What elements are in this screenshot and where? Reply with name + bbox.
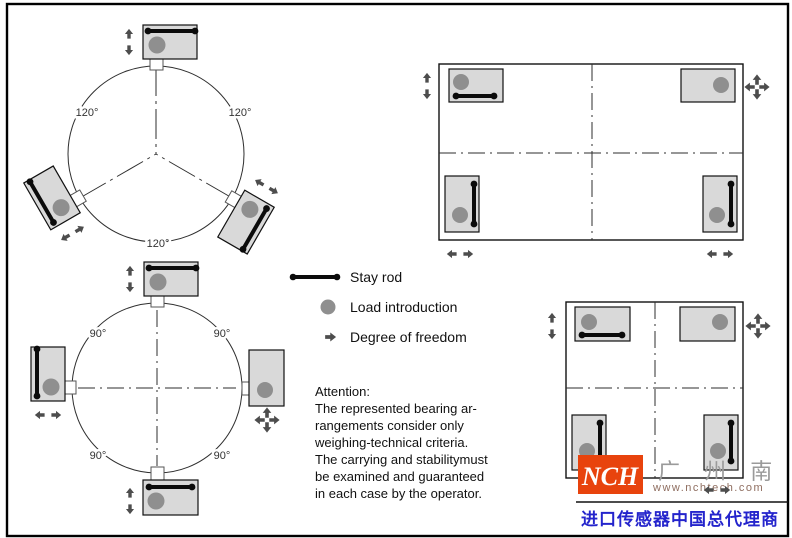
attention-line: be examined and guaranteed (315, 469, 484, 484)
attention-line: The represented bearing ar- (315, 401, 477, 416)
company-name: 广 州 南 创 (658, 459, 792, 484)
angle-label-90-tr: 90° (214, 328, 231, 340)
legend-stay-rod-label: Stay rod (350, 269, 402, 285)
attention-line: weighing-technical criteria. (314, 435, 468, 450)
load-cell-pad-br (703, 176, 737, 232)
load-introduction-icon (257, 382, 273, 398)
load-cell-pad-tl (449, 69, 503, 102)
angle-label-90-bl: 90° (90, 450, 107, 462)
load-cell-pad-tl (575, 307, 630, 341)
legend-load-introduction-label: Load introduction (350, 299, 457, 315)
angle-label-90-tl: 90° (90, 328, 107, 340)
load-cell-pad-tr (680, 307, 735, 341)
nch-logo: NCH 广 州 南 创 www.nchtech.com 进口传感器中国总代理商 (576, 455, 792, 529)
attention-line: rangements consider only (315, 418, 464, 433)
attention-line: The carrying and stabilitymust (315, 452, 488, 467)
attention-note: Attention: The represented bearing ar- r… (314, 384, 488, 501)
distributor-tagline: 进口传感器中国总代理商 (581, 509, 779, 529)
nch-logo-abbr: NCH (581, 462, 639, 491)
angle-label-120-right: 120° (229, 107, 252, 119)
load-introduction-icon (321, 300, 336, 315)
angle-label-120-bottom: 120° (147, 238, 170, 250)
legend-degree-of-freedom-label: Degree of freedom (350, 329, 467, 345)
diagram-canvas: 120° 120° 120° 90° 90° 90° 90° (0, 0, 792, 538)
attention-title: Attention: (315, 384, 370, 399)
load-cell-pad-bl (445, 176, 479, 232)
angle-label-120-left: 120° (76, 107, 99, 119)
load-cell-pad-tr (681, 69, 735, 102)
attention-line: in each case by the operator. (315, 486, 482, 501)
angle-label-90-br: 90° (214, 450, 231, 462)
bearing-arrangement-figure: 120° 120° 120° 90° 90° 90° 90° (0, 0, 792, 538)
